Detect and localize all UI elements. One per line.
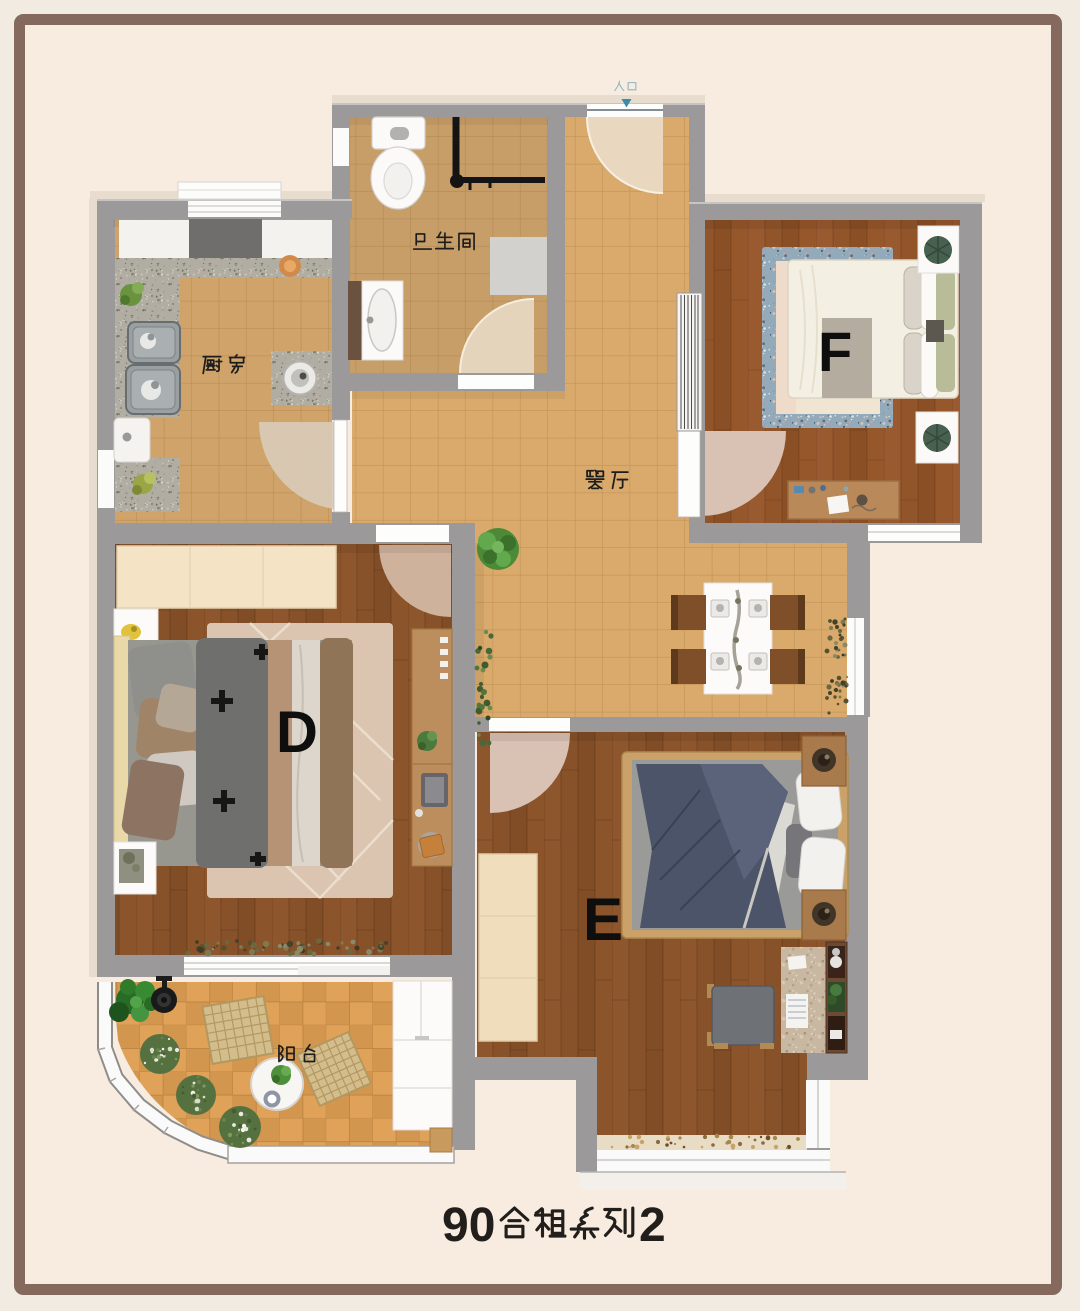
svg-text:E: E [583,886,623,953]
svg-text:F: F [818,320,852,383]
svg-text:D: D [276,700,318,765]
svg-text:2: 2 [639,1199,666,1252]
svg-text:90: 90 [442,1199,495,1252]
